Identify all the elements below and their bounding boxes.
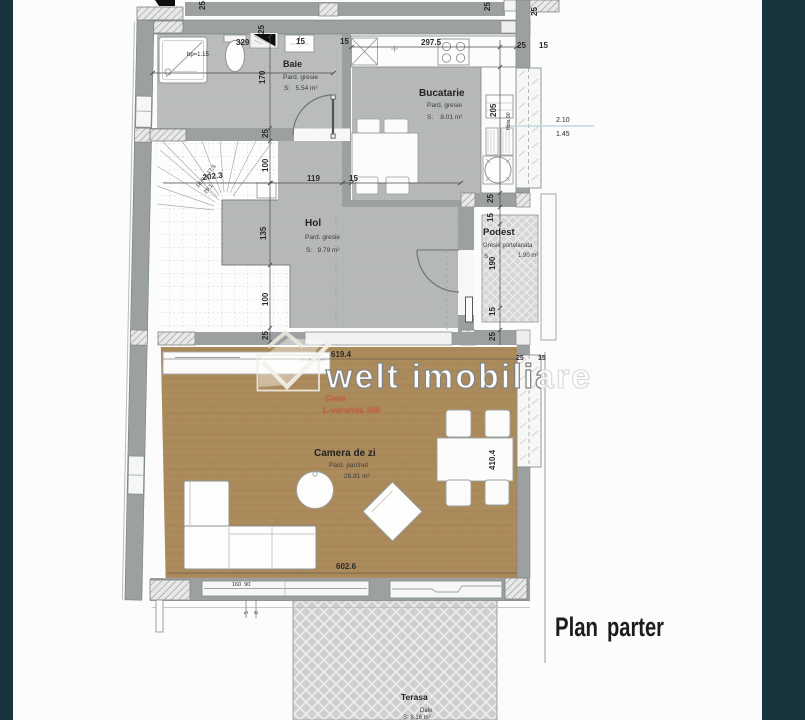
svg-text:5: 5: [244, 611, 250, 614]
svg-text:25: 25: [530, 7, 539, 16]
svg-text:25: 25: [261, 129, 270, 138]
svg-text:25: 25: [486, 194, 495, 203]
svg-text:2.10: 2.10: [556, 117, 570, 124]
svg-text:Bucatarie: Bucatarie: [419, 88, 465, 99]
svg-text:160 90: 160 90: [232, 582, 250, 588]
svg-text:1.45: 1.45: [556, 131, 570, 138]
svg-text:15: 15: [349, 174, 358, 183]
svg-text:297.5: 297.5: [421, 38, 442, 47]
svg-text:bp=1.15: bp=1.15: [187, 52, 210, 58]
svg-text:Plan: Plan: [555, 612, 598, 642]
svg-text:190: 190: [488, 256, 497, 270]
svg-text:25: 25: [198, 1, 207, 10]
svg-text:Gresie portelanata: Gresie portelanata: [483, 243, 533, 249]
svg-text:L-veranda 350: L-veranda 350: [323, 405, 380, 415]
svg-text:S: 8.01 m²: S: 8.01 m²: [427, 114, 463, 121]
svg-text:Terasa: Terasa: [401, 692, 428, 702]
svg-text:15: 15: [539, 41, 548, 50]
svg-text:170: 170: [258, 70, 267, 84]
svg-text:119: 119: [307, 174, 320, 183]
svg-text:15: 15: [296, 37, 305, 46]
svg-text:Casa: Casa: [325, 393, 346, 403]
svg-text:Pard. gresie: Pard. gresie: [305, 234, 340, 241]
svg-text:135: 135: [259, 226, 268, 240]
svg-text:25: 25: [488, 332, 497, 341]
svg-text:25: 25: [517, 41, 526, 50]
svg-text:25: 25: [261, 331, 270, 340]
svg-text:S: 5.54 m²: S: 5.54 m²: [284, 85, 318, 92]
svg-text:Podest: Podest: [483, 227, 516, 238]
svg-text:8: 8: [254, 611, 260, 614]
svg-text:parter: parter: [607, 612, 664, 642]
svg-text:602.6: 602.6: [336, 562, 357, 571]
svg-text:Pard. gresie: Pard. gresie: [283, 74, 318, 81]
svg-text:Camera de zi: Camera de zi: [314, 448, 376, 459]
svg-text:15: 15: [488, 307, 497, 316]
svg-text:100: 100: [261, 292, 270, 306]
svg-text:26.91 m²: 26.91 m²: [344, 473, 370, 480]
svg-text:329: 329: [236, 38, 250, 47]
svg-text:100: 100: [261, 158, 270, 172]
svg-text:S: 9.79 m²: S: 9.79 m²: [306, 247, 340, 254]
svg-text:25: 25: [257, 25, 266, 34]
svg-text:1.90 m²: 1.90 m²: [518, 253, 538, 259]
svg-text:Pard. gresie: Pard. gresie: [427, 102, 462, 109]
svg-text:Hol: Hol: [305, 218, 321, 229]
svg-text:Dale: Dale: [420, 708, 433, 714]
svg-text:Hota 90: Hota 90: [506, 112, 512, 130]
svg-text:410.4: 410.4: [488, 449, 497, 470]
svg-text:Pard. parchet: Pard. parchet: [329, 462, 368, 469]
svg-text:15: 15: [340, 37, 349, 46]
svg-text:15: 15: [486, 213, 495, 222]
svg-text:Baie: Baie: [283, 59, 302, 69]
svg-text:S: 8.16 m²: S: 8.16 m²: [403, 715, 431, 720]
svg-text:205: 205: [489, 103, 498, 117]
svg-text:25: 25: [483, 2, 492, 11]
